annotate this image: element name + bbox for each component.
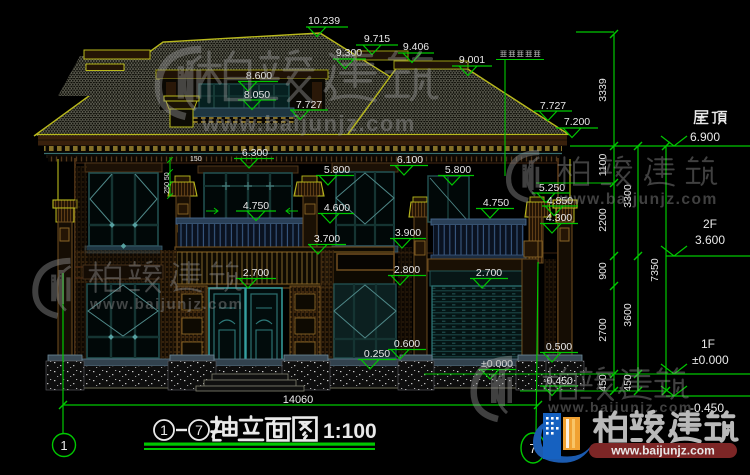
svg-text:0.500: 0.500: [546, 341, 572, 353]
svg-text:2700: 2700: [597, 318, 609, 342]
svg-text:0.250: 0.250: [364, 348, 390, 360]
svg-text:5.800: 5.800: [445, 164, 471, 176]
svg-text:0.600: 0.600: [394, 338, 420, 350]
svg-text:2200: 2200: [597, 208, 609, 232]
svg-text:4.600: 4.600: [324, 202, 350, 214]
svg-text:14060: 14060: [283, 394, 314, 406]
svg-text:±0.000: ±0.000: [692, 353, 729, 367]
svg-text:7350: 7350: [649, 258, 661, 282]
svg-text:1:100: 1:100: [323, 420, 377, 443]
svg-text:2.700: 2.700: [476, 267, 502, 279]
svg-text:4.750: 4.750: [243, 200, 269, 212]
svg-text:4.300: 4.300: [546, 212, 572, 224]
svg-text:www.baijunjz.com: www.baijunjz.com: [610, 444, 715, 458]
svg-text:1: 1: [60, 438, 67, 453]
svg-text:7: 7: [195, 422, 203, 438]
svg-text:2.800: 2.800: [394, 264, 420, 276]
svg-text:9.715: 9.715: [364, 33, 390, 45]
svg-text:6.900: 6.900: [690, 130, 720, 144]
svg-text:2F: 2F: [703, 217, 717, 231]
svg-text:10.239: 10.239: [308, 15, 340, 27]
svg-text:3.700: 3.700: [314, 233, 340, 245]
svg-text:5.800: 5.800: [324, 164, 350, 176]
svg-text:2.700: 2.700: [243, 267, 269, 279]
svg-text:6.100: 6.100: [397, 154, 423, 166]
svg-text:7.727: 7.727: [540, 100, 566, 112]
svg-text:3.900: 3.900: [395, 227, 421, 239]
svg-text:250 50: 250 50: [164, 172, 171, 194]
svg-text:1: 1: [160, 422, 168, 438]
svg-text:www.baijunjz.com: www.baijunjz.com: [89, 296, 243, 313]
svg-text:150: 150: [190, 156, 202, 163]
svg-text:4.750: 4.750: [483, 197, 509, 209]
svg-text:3339: 3339: [597, 78, 609, 102]
svg-text:3.600: 3.600: [695, 233, 725, 247]
svg-text:7.200: 7.200: [564, 116, 590, 128]
svg-text:6.300: 6.300: [242, 147, 268, 159]
svg-text:www.baijunjz.com: www.baijunjz.com: [201, 111, 416, 136]
svg-text:www.baijunjz.com: www.baijunjz.com: [547, 399, 693, 415]
svg-text:9.406: 9.406: [403, 41, 429, 53]
svg-text:www.baijunjz.com: www.baijunjz.com: [559, 191, 718, 208]
svg-text:9.001: 9.001: [459, 54, 485, 66]
svg-text:900: 900: [597, 262, 609, 280]
svg-text:3600: 3600: [622, 303, 634, 327]
svg-text:1F: 1F: [701, 337, 715, 351]
